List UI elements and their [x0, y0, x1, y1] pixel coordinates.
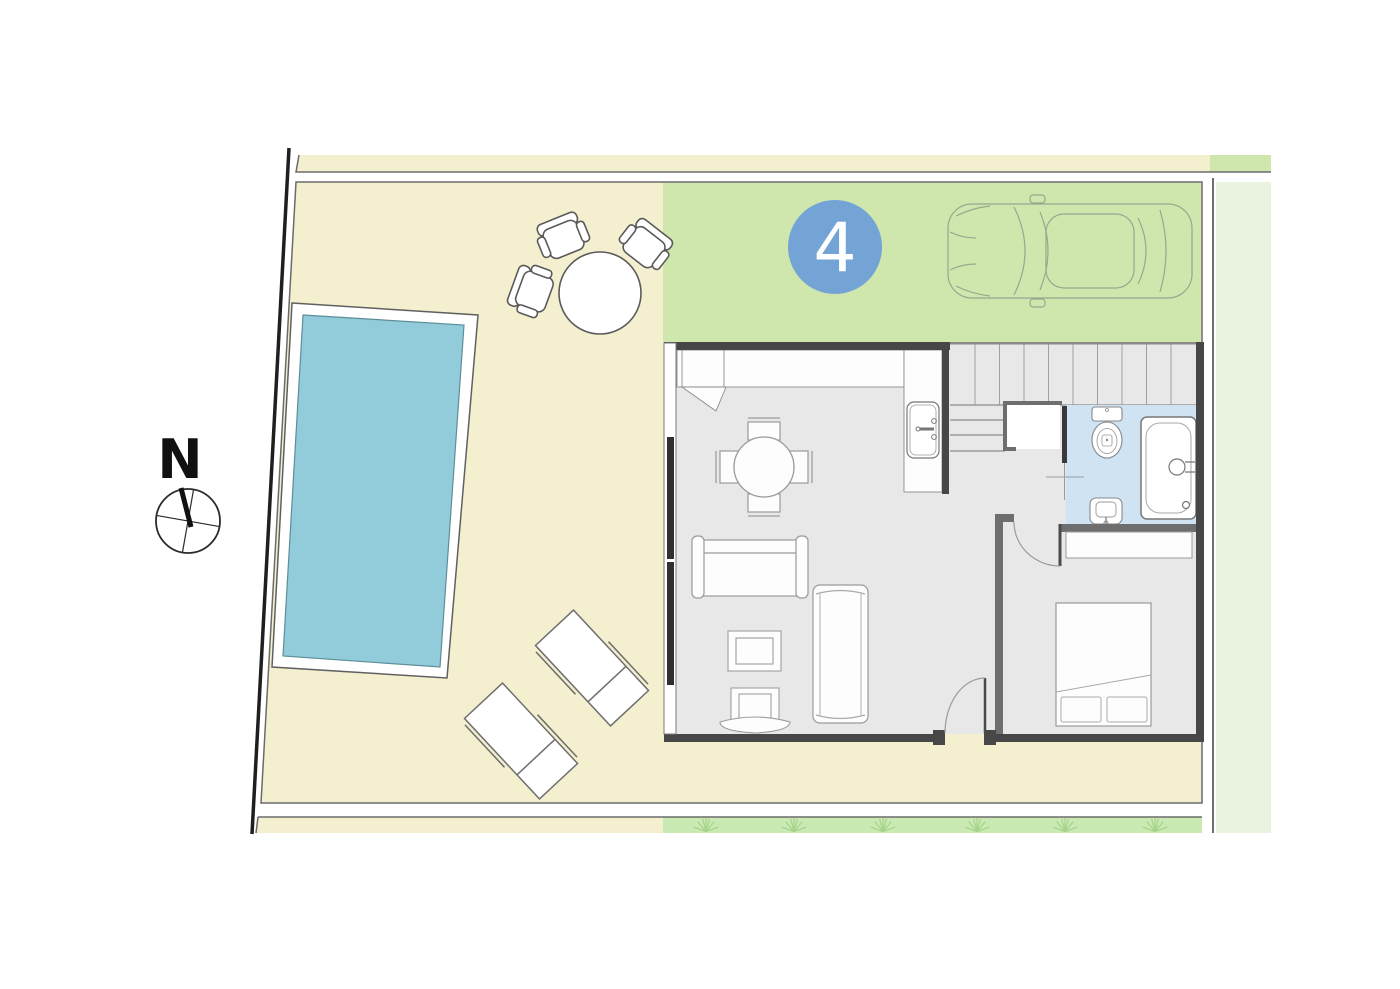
dining-table	[734, 437, 794, 497]
plot-number: 4	[813, 209, 856, 288]
neighbor-plot-strip	[1213, 178, 1271, 833]
pool-water	[283, 315, 464, 667]
kitchen-wall	[942, 344, 949, 494]
driveway	[663, 183, 1201, 342]
pillow-right	[1107, 697, 1147, 722]
north-label: N	[157, 428, 202, 491]
house	[664, 342, 1204, 745]
sofa	[692, 536, 808, 598]
compass-icon	[151, 484, 225, 558]
bedroom-wall	[995, 514, 1003, 734]
bathroom-door	[1062, 406, 1067, 463]
daybed	[813, 585, 868, 723]
coffee-table	[728, 631, 781, 671]
bathroom	[1046, 405, 1196, 527]
tv-unit	[720, 688, 790, 733]
north-indicator: N	[151, 428, 225, 558]
closet	[1003, 403, 1062, 449]
bathtub	[1141, 417, 1196, 519]
kitchen-sink	[907, 402, 939, 458]
toilet	[1092, 407, 1122, 458]
plot-number-badge[interactable]: 4	[788, 200, 882, 294]
wardrobe	[1066, 532, 1192, 558]
floor-plan-image: 4	[0, 0, 1400, 989]
bed	[1056, 603, 1151, 726]
pool	[272, 303, 478, 678]
pillow-left	[1061, 697, 1101, 722]
boundary-strip-top	[296, 155, 1271, 172]
patio-table	[559, 252, 641, 334]
lawn-strip	[256, 817, 1202, 833]
bathroom-sink	[1090, 498, 1122, 527]
site-plan: 4	[0, 0, 1400, 989]
